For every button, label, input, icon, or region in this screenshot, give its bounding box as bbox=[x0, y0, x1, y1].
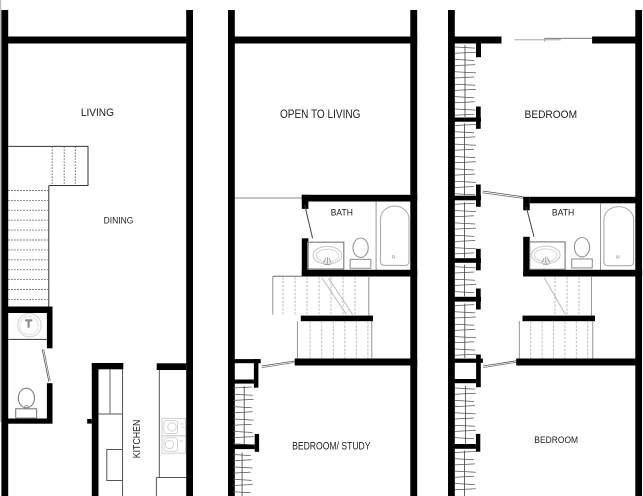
svg-text:BATH: BATH bbox=[552, 207, 574, 217]
svg-text:KITCHEN: KITCHEN bbox=[132, 420, 143, 459]
svg-text:LIVING: LIVING bbox=[81, 107, 114, 119]
svg-text:BEDROOM: BEDROOM bbox=[534, 435, 578, 446]
svg-text:BEDROOM/ STUDY: BEDROOM/ STUDY bbox=[292, 441, 370, 453]
svg-text:BATH: BATH bbox=[331, 207, 353, 217]
svg-text:OPEN TO LIVING: OPEN TO LIVING bbox=[280, 109, 361, 121]
svg-text:BEDROOM: BEDROOM bbox=[525, 109, 578, 121]
svg-text:DINING: DINING bbox=[104, 214, 134, 225]
